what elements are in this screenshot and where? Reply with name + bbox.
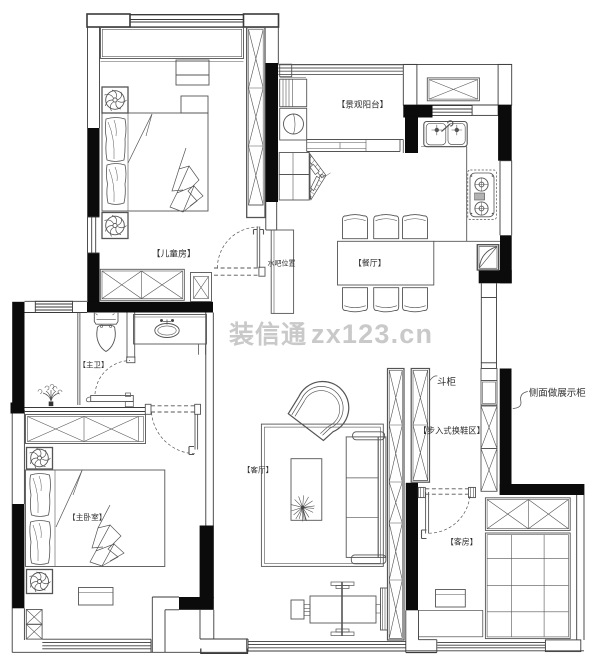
svg-text:【餐厅】: 【餐厅】 xyxy=(354,259,386,268)
svg-text:侧面做展示柜: 侧面做展示柜 xyxy=(529,387,587,399)
svg-text:斗柜: 斗柜 xyxy=(437,376,457,388)
svg-text:装信通: 装信通 xyxy=(229,321,307,349)
svg-text:【客房】: 【客房】 xyxy=(446,537,478,547)
svg-text:【主卧室】: 【主卧室】 xyxy=(68,512,106,522)
svg-text:【主卫】: 【主卫】 xyxy=(79,360,109,370)
svg-text:【景观阳台】: 【景观阳台】 xyxy=(337,99,389,110)
svg-text:【客厅】: 【客厅】 xyxy=(243,464,273,474)
svg-text:水吧位置: 水吧位置 xyxy=(268,259,296,268)
svg-text:【步入式换鞋区】: 【步入式换鞋区】 xyxy=(419,426,485,436)
svg-text:【儿童房】: 【儿童房】 xyxy=(152,248,196,259)
svg-text:zx123.cn: zx123.cn xyxy=(311,319,433,349)
